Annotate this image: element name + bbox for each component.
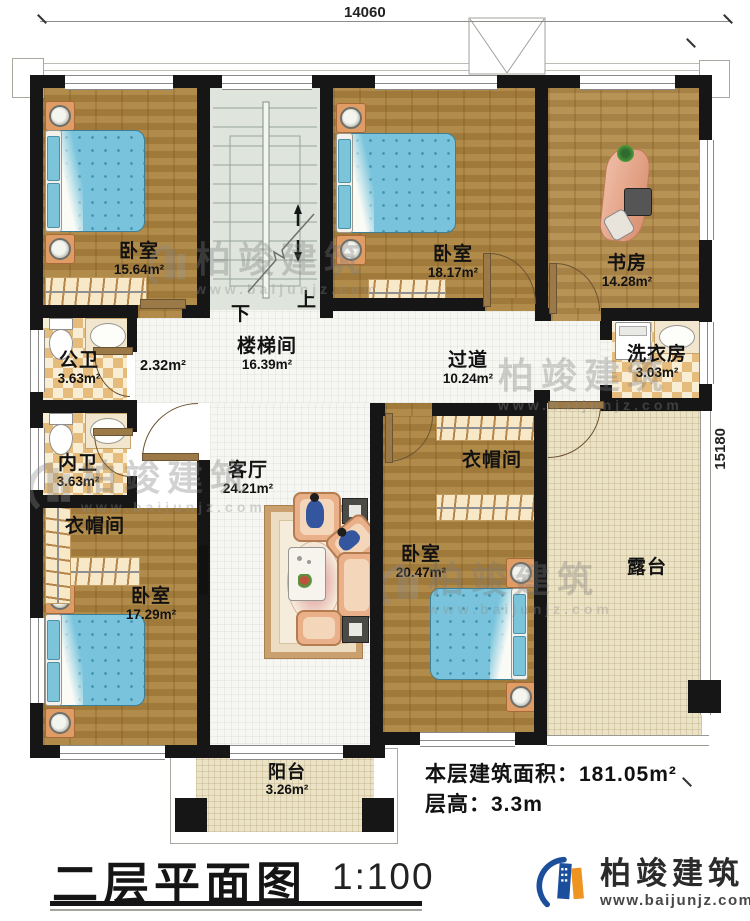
door-gap xyxy=(600,340,612,385)
window xyxy=(222,75,312,90)
title-underline-thin xyxy=(50,909,422,911)
room-label-public-bathroom: 公卫 3.63m² xyxy=(58,350,101,386)
brand-logo: 柏竣建筑 www.baijunjz.com xyxy=(536,855,750,911)
room-label-bedroom-top-left: 卧室 15.64m² xyxy=(114,241,164,277)
balcony-pillar xyxy=(362,798,394,832)
wall xyxy=(197,75,210,318)
plan-scale: 1:100 xyxy=(332,856,435,898)
side-table xyxy=(342,616,369,643)
stairs-down-label: 下 xyxy=(231,299,250,326)
coffee-table xyxy=(288,547,326,601)
right-dimension-value: 15180 xyxy=(712,428,729,470)
wall xyxy=(320,75,333,318)
balcony-slider-window xyxy=(230,745,343,760)
terrace-railing xyxy=(547,735,709,746)
room-label-cloakroom-left: 衣帽间 xyxy=(65,516,125,537)
wall xyxy=(370,403,383,745)
terrace-railing xyxy=(700,405,711,715)
window xyxy=(375,75,497,90)
stairs-up-label: 上 xyxy=(297,285,316,312)
room-label-bedroom-bottom-right: 卧室 20.47m² xyxy=(396,544,446,580)
window xyxy=(699,140,714,240)
nightstand xyxy=(336,103,366,133)
room-label-living-room: 客厅 24.21m² xyxy=(223,460,273,496)
nightstand xyxy=(45,101,75,131)
room-label-private-bathroom: 内卫 3.63m² xyxy=(57,453,100,489)
toilet xyxy=(47,413,75,455)
door-leaf xyxy=(385,413,393,463)
door-leaf xyxy=(549,263,557,314)
door-leaf xyxy=(142,453,199,461)
tv xyxy=(199,545,208,595)
nightstand xyxy=(506,682,536,712)
brand-url: www.baijunjz.com xyxy=(600,892,750,909)
room-label-study: 书房 14.28m² xyxy=(602,253,652,289)
floor-area-stat: 本层建筑面积：181.05m² xyxy=(425,758,677,788)
bed xyxy=(45,614,145,706)
room-label-laundry: 洗衣房 3.03m² xyxy=(627,344,687,380)
bed xyxy=(45,130,145,232)
hall-corridor-floor xyxy=(135,310,600,403)
window xyxy=(30,428,45,490)
dimension-tick xyxy=(723,14,733,24)
window xyxy=(420,732,515,747)
door-leaf xyxy=(483,253,491,307)
room-label-cloakroom-right: 衣帽间 xyxy=(462,450,522,471)
room-label-corridor: 过道 10.24m² xyxy=(443,350,493,386)
wall xyxy=(534,403,547,745)
wall xyxy=(197,460,210,758)
door-leaf xyxy=(548,401,604,409)
nightstand xyxy=(45,234,75,264)
computer-monitor xyxy=(624,188,652,216)
wall xyxy=(127,476,137,497)
door-leaf xyxy=(140,299,186,309)
wardrobe xyxy=(45,277,147,307)
dimension-tick xyxy=(682,777,692,787)
window xyxy=(30,618,45,703)
person xyxy=(306,500,324,528)
brand-logo-icon xyxy=(536,855,592,911)
stairs xyxy=(210,88,320,310)
wardrobe xyxy=(436,414,536,441)
dimension-tick xyxy=(686,38,696,48)
window xyxy=(60,745,165,760)
floor-height-stat: 层高：3.3m xyxy=(425,788,543,818)
room-label-terrace: 露台 xyxy=(627,557,667,578)
balcony-pillar xyxy=(175,798,207,832)
room-label-bedroom-top-middle: 卧室 18.17m² xyxy=(428,244,478,280)
room-label-vestibule: 2.32m² xyxy=(140,358,186,374)
top-dimension-value: 14060 xyxy=(338,4,392,21)
nightstand xyxy=(45,708,75,738)
room-label-bedroom-bottom-left: 卧室 17.29m² xyxy=(126,586,176,622)
door-leaf xyxy=(93,428,133,436)
plant xyxy=(617,145,634,162)
door-arc xyxy=(142,403,198,459)
wall xyxy=(600,398,712,411)
wall xyxy=(535,75,548,321)
window xyxy=(65,75,173,90)
floor-plan-canvas: 14060 15180 xyxy=(0,0,750,921)
title-underline xyxy=(50,901,422,906)
nightstand xyxy=(506,558,536,588)
wall xyxy=(30,495,137,508)
bed xyxy=(430,588,528,680)
wall xyxy=(30,400,137,413)
brand-name: 柏竣建筑 xyxy=(600,858,750,889)
window xyxy=(30,330,45,392)
wardrobe xyxy=(436,494,536,521)
nightstand xyxy=(336,235,366,265)
dimension-tick xyxy=(37,14,47,24)
bed xyxy=(336,133,456,233)
window xyxy=(580,75,675,90)
roof-skylight-mark xyxy=(468,17,546,75)
window xyxy=(699,322,714,384)
window-sill xyxy=(38,63,714,71)
room-label-balcony: 阳台 3.26m² xyxy=(266,762,309,797)
armchair xyxy=(296,610,342,646)
terrace-pillar xyxy=(688,680,721,713)
wall xyxy=(600,315,612,340)
top-dimension-line xyxy=(40,21,730,22)
room-label-stairwell: 楼梯间 16.39m² xyxy=(237,336,297,372)
